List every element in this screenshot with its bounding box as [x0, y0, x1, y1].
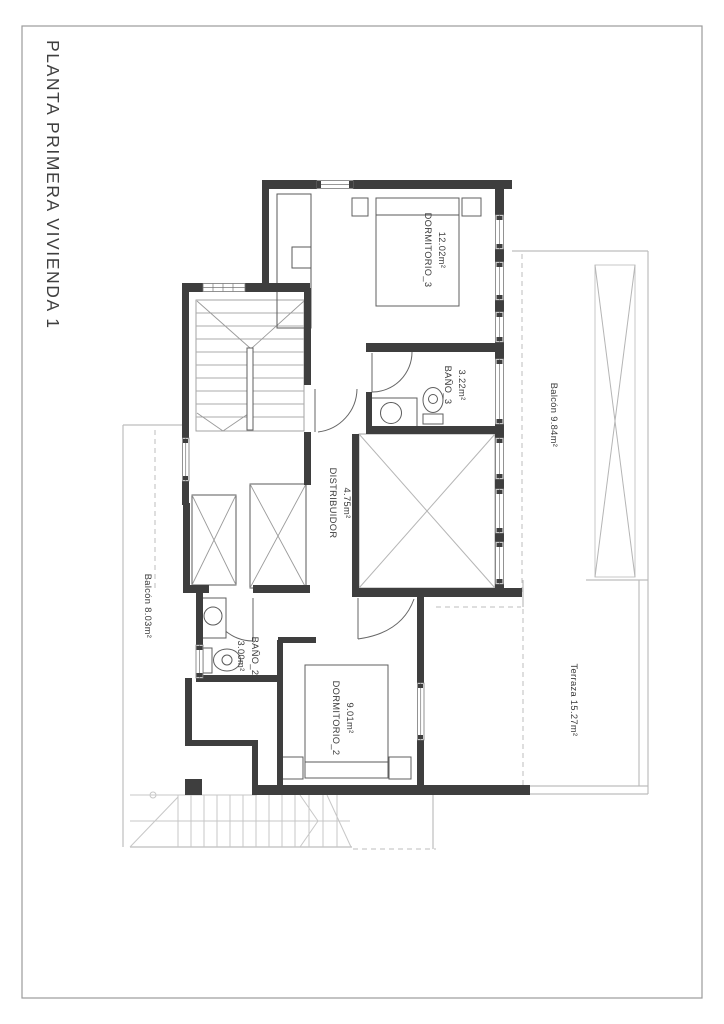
svg-text:BAÑO_2: BAÑO_2 [250, 637, 260, 676]
window-left [183, 438, 190, 481]
svg-text:Terraza 15.27m²: Terraza 15.27m² [569, 664, 579, 737]
window-bano2 [196, 645, 203, 678]
room-label-bano-3: BAÑO_3 3.22m² [443, 366, 467, 405]
sheet-border [22, 26, 702, 998]
window-dormitorio2 [418, 683, 425, 740]
bano3-sink [370, 398, 417, 429]
nightstand [352, 198, 368, 216]
svg-text:DORMITORIO_2: DORMITORIO_2 [331, 681, 341, 756]
room-label-balcon-right: Balcón 9.84m² [549, 383, 559, 448]
bed-dormitorio3 [352, 198, 481, 306]
svg-text:Balcón 9.84m²: Balcón 9.84m² [549, 383, 559, 448]
pillar [185, 779, 202, 795]
window-right-3 [496, 312, 504, 342]
nightstand [281, 757, 303, 779]
nightstand [462, 198, 481, 216]
window-right-1 [496, 215, 504, 249]
svg-text:3.22m²: 3.22m² [457, 369, 467, 400]
stair-railing [247, 348, 253, 430]
room-label-terraza: Terraza 15.27m² [569, 664, 579, 737]
svg-text:3.00m²: 3.00m² [236, 640, 246, 671]
window-right-6 [496, 489, 504, 533]
interior-stair [196, 300, 304, 431]
window-stair [203, 284, 245, 292]
window-right-7 [496, 542, 504, 584]
svg-text:4.75m²: 4.75m² [342, 487, 352, 518]
bano3-toilet [423, 388, 443, 425]
void-skylight [359, 434, 495, 588]
terrace-outline [433, 580, 648, 794]
bano2-toilet [203, 648, 241, 673]
page-title: PLANTA PRIMERA VIVIENDA 1 [43, 40, 63, 330]
door-bano3 [372, 352, 412, 392]
svg-text:9.01m²: 9.01m² [345, 702, 355, 733]
window-top [317, 181, 353, 189]
bano2-sink [200, 598, 226, 638]
svg-text:12.02m²: 12.02m² [437, 232, 447, 269]
svg-text:DORMITORIO_3: DORMITORIO_3 [423, 213, 433, 288]
wardrobe-large [250, 484, 306, 588]
nightstand [389, 757, 411, 779]
wardrobe-small [192, 495, 236, 585]
exterior-stair [130, 788, 436, 849]
window-right-5 [496, 438, 504, 479]
svg-text:DISTRIBUIDOR: DISTRIBUIDOR [328, 468, 338, 539]
plan-sheet: PLANTA PRIMERA VIVIENDA 1 [0, 0, 724, 1024]
svg-text:BAÑO_3: BAÑO_3 [443, 366, 453, 405]
svg-text:Balcón 8.03m²: Balcón 8.03m² [143, 574, 153, 639]
balcony-right-outline [512, 251, 648, 794]
floor-plan-svg: PLANTA PRIMERA VIVIENDA 1 [0, 0, 724, 1024]
room-label-balcon-left: Balcón 8.03m² [143, 574, 153, 639]
room-label-bano-2: BAÑO_2 3.00m² [236, 637, 260, 676]
room-label-distribuidor: DISTRIBUIDOR 4.75m² [328, 468, 352, 539]
window-right-2 [496, 262, 504, 300]
door-dormitorio3 [315, 389, 357, 432]
window-right-4 [496, 359, 504, 424]
door-dormitorio2 [358, 598, 414, 639]
